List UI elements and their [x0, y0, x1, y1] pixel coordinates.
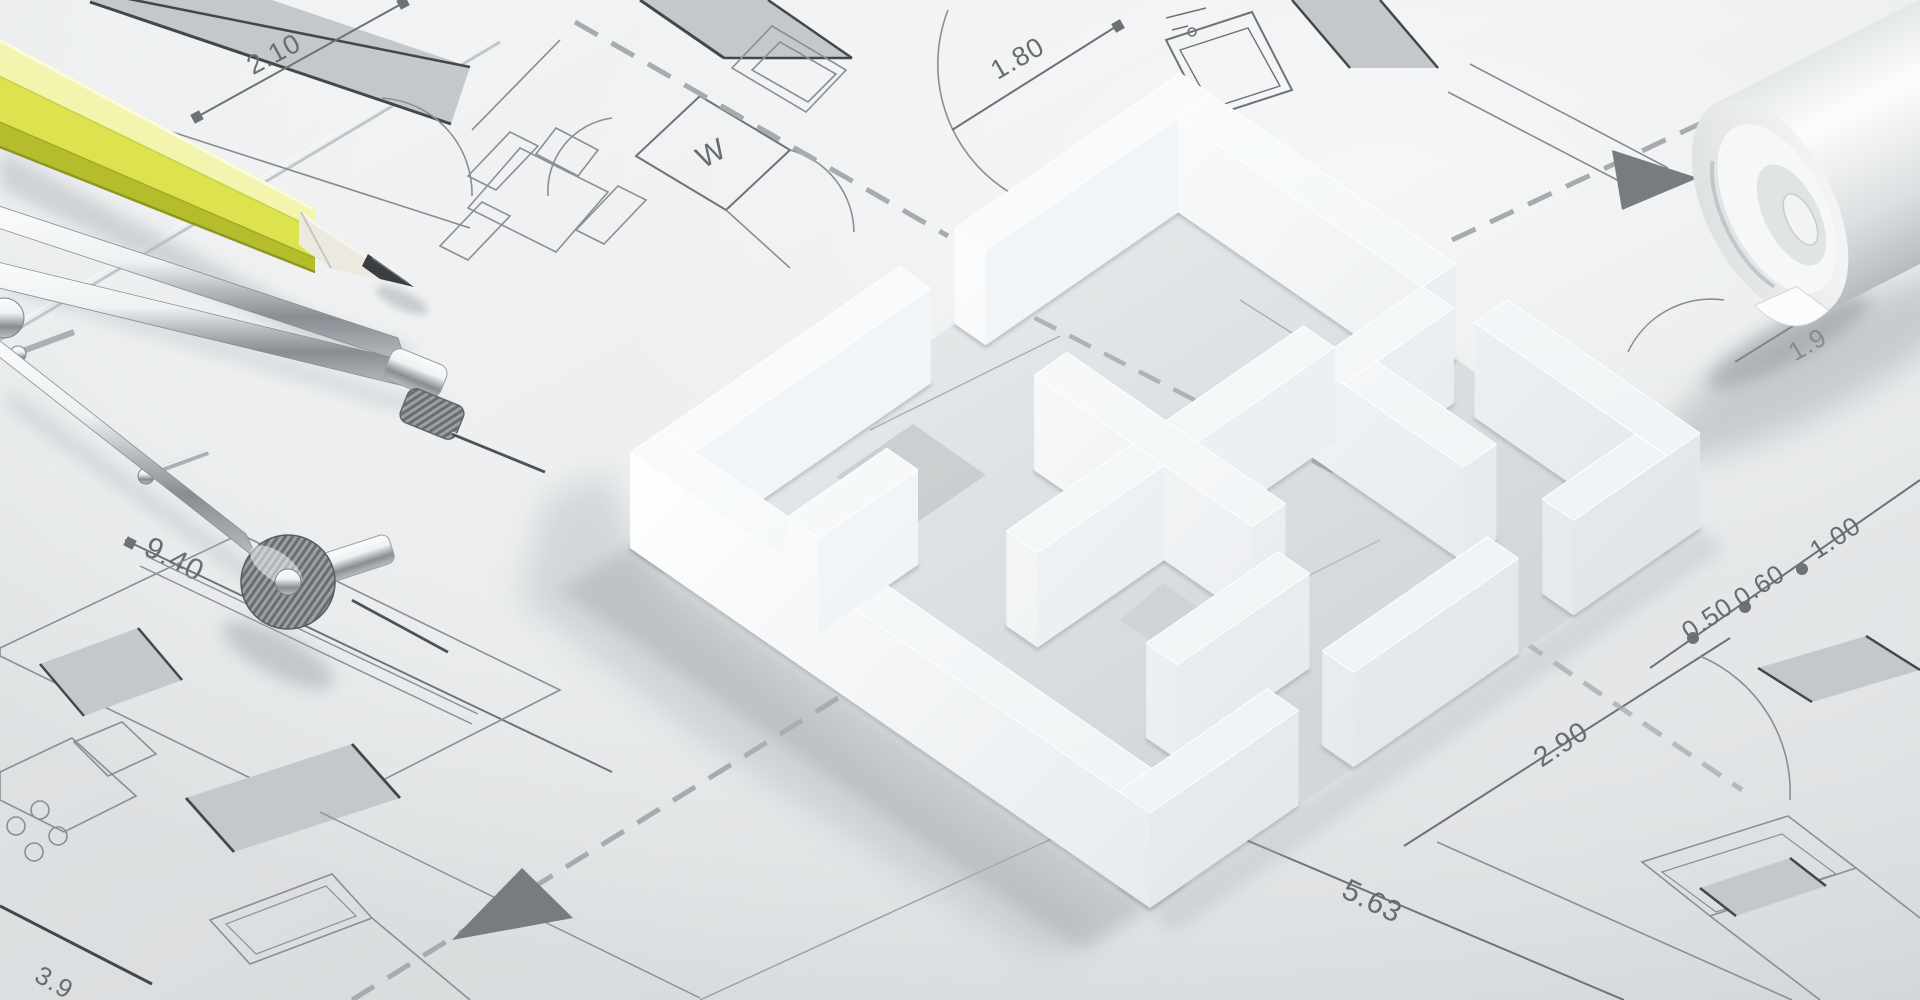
scene-render: 2.10 W	[0, 0, 1920, 1000]
architectural-render: 2.10 W	[0, 0, 1920, 1000]
dim-marker	[1796, 563, 1808, 575]
compass-knob-screw	[275, 569, 301, 595]
